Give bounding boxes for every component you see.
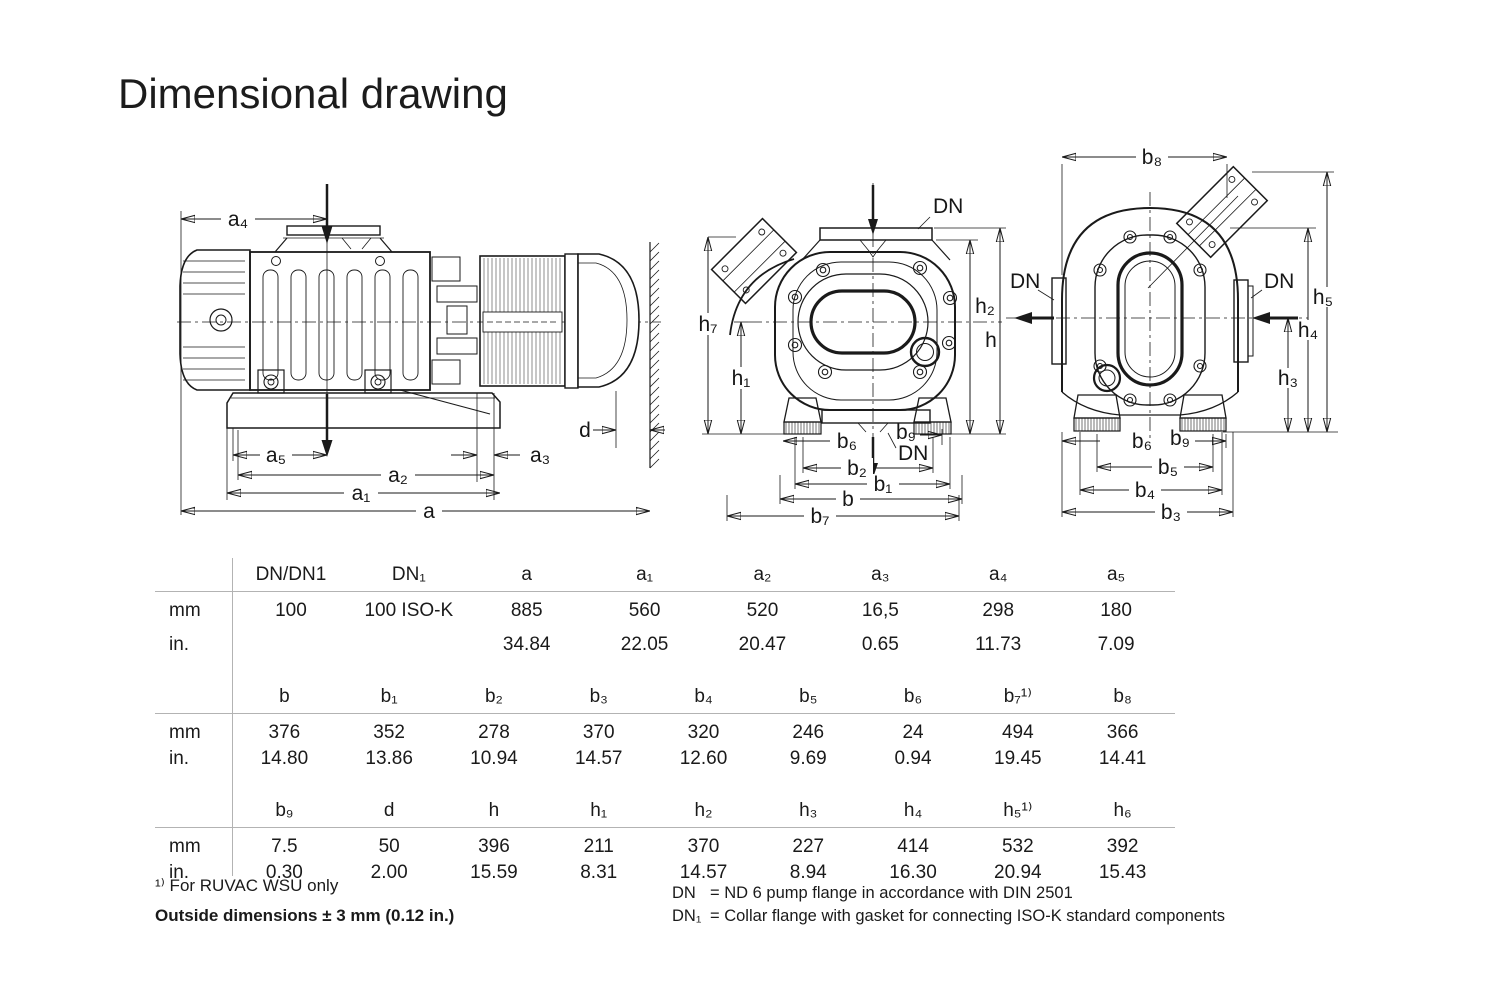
table-cell: 298	[939, 598, 1057, 624]
column-header: h₆	[1070, 799, 1175, 823]
table-cell: 532	[965, 834, 1070, 860]
dim-label-dn-left: DN	[1010, 270, 1040, 293]
table-corner	[155, 792, 232, 816]
table-cell: 20.94	[965, 860, 1070, 886]
table-cell: 180	[1057, 598, 1175, 624]
legend-definition: = Collar flange with gasket for connecti…	[710, 907, 1225, 926]
column-header: b	[232, 685, 337, 709]
column-header: a₅	[1057, 563, 1175, 587]
table-cell: 352	[337, 720, 442, 746]
table-row-in: in. 34.84 22.05 20.47 0.65 11.73 7.09	[155, 624, 1175, 658]
table-cell: 22.05	[586, 632, 704, 658]
footnote-tolerance: Outside dimensions ± 3 mm (0.12 in.)	[155, 906, 454, 926]
table-cell: 246	[756, 720, 861, 746]
dim-label-b3: b₃	[1161, 501, 1181, 524]
table-cell: 520	[704, 598, 822, 624]
table-cell: 50	[337, 834, 442, 860]
unit-label-mm: mm	[155, 834, 232, 860]
table-cell: 13.86	[337, 746, 442, 772]
dim-label-b4: b₄	[1135, 479, 1155, 502]
legend-term: DN₁	[672, 907, 710, 926]
table-cell: 34.84	[468, 632, 586, 658]
legend-definition: = ND 6 pump flange in accordance with DI…	[710, 884, 1225, 903]
dim-label-h4: h₄	[1298, 319, 1318, 342]
table-cell: 15.59	[442, 860, 547, 886]
column-header: h₁	[546, 799, 651, 823]
table-cell: 392	[1070, 834, 1175, 860]
dim-label-b5: b₅	[1158, 456, 1178, 479]
unit-label-mm: mm	[155, 720, 232, 746]
table-cell: 560	[586, 598, 704, 624]
dim-label-h7: h₇	[699, 313, 718, 336]
dim-label-b8: b₈	[1142, 146, 1162, 169]
column-header: b₃	[546, 685, 651, 709]
table-cell: 885	[468, 598, 586, 624]
column-header: h₂	[651, 799, 756, 823]
dim-label-d: d	[579, 419, 591, 442]
table-cell	[350, 624, 468, 650]
column-header: a	[468, 563, 586, 587]
table-cell: 14.57	[651, 860, 756, 886]
dim-label-b: b	[842, 488, 854, 511]
table-cell: 366	[1070, 720, 1175, 746]
column-header: DN/DN1	[232, 563, 350, 587]
table-cell: 370	[546, 720, 651, 746]
table-section-b: b b₁ b₂ b₃ b₄ b₅ b₆ b₇¹⁾ b₈ mm 376 352 2…	[155, 678, 1175, 772]
column-header: h₅¹⁾	[965, 799, 1070, 823]
column-header: DN₁	[350, 563, 468, 587]
table-cell: 7.09	[1057, 632, 1175, 658]
end-view-drawing: b₈ DN DN h₅ h₄ h₃ b₆ b₉ b₅	[990, 140, 1360, 545]
column-header: h	[442, 799, 547, 823]
flange-bolts	[789, 262, 957, 379]
side-view-drawing: a₄ d a₅ a₃ a₂ a₁ a	[175, 142, 665, 547]
side-port-flange	[712, 219, 797, 304]
unit-label-in: in.	[155, 632, 232, 658]
dim-label-a2: a₂	[388, 464, 408, 487]
legend-row-dn: DN = ND 6 pump flange in accordance with…	[672, 884, 1225, 903]
column-header: h₄	[861, 799, 966, 823]
column-header: b₁	[337, 685, 442, 709]
dim-label-b6: b₆	[837, 430, 857, 453]
dim-label-b1: b₁	[874, 473, 893, 496]
dim-label-a5: a₅	[266, 444, 286, 467]
table-cell: 211	[546, 834, 651, 860]
column-header: b₄	[651, 685, 756, 709]
dimensions-table: DN/DN1 DN₁ a a₁ a₂ a₃ a₄ a₅ mm 100 100 I…	[155, 556, 1175, 886]
table-cell: 494	[965, 720, 1070, 746]
table-cell: 278	[442, 720, 547, 746]
dim-label-dn-top: DN	[933, 195, 963, 218]
end-view-pump	[1006, 167, 1308, 440]
dim-label-b9: b₉	[896, 421, 916, 444]
column-header: a₁	[586, 563, 704, 587]
footnotes-left: ¹⁾ For RUVAC WSU only Outside dimensions…	[155, 876, 454, 926]
table-cell: 414	[861, 834, 966, 860]
table-cell: 19.45	[965, 746, 1070, 772]
front-view-dimensions: DN DN h₇ h₁ h₂ h b₆ b₉ b₂	[695, 195, 1006, 528]
table-cell: 9.69	[756, 746, 861, 772]
table-cell: 376	[232, 720, 337, 746]
column-header: b₉	[232, 799, 337, 823]
table-corner	[155, 556, 232, 580]
table-section-h: b₉ d h h₁ h₂ h₃ h₄ h₅¹⁾ h₆ mm 7.5 50 396…	[155, 792, 1175, 886]
column-header: b₂	[442, 685, 547, 709]
table-cell: 8.31	[546, 860, 651, 886]
table-cell: 7.5	[232, 834, 337, 860]
table-section-a: DN/DN1 DN₁ a a₁ a₂ a₃ a₄ a₅ mm 100 100 I…	[155, 556, 1175, 658]
dim-label-a1: a₁	[352, 482, 371, 505]
table-cell: 14.80	[232, 746, 337, 772]
table-row-mm: mm 376 352 278 370 320 246 24 494 366	[155, 720, 1175, 746]
legend-row-dn1: DN₁ = Collar flange with gasket for conn…	[672, 907, 1225, 926]
table-cell: 16.30	[861, 860, 966, 886]
footnote-ruvac: ¹⁾ For RUVAC WSU only	[155, 876, 454, 896]
unit-label-mm: mm	[155, 598, 232, 624]
table-cell: 24	[861, 720, 966, 746]
dim-label-h5: h₅	[1313, 286, 1333, 309]
table-cell: 396	[442, 834, 547, 860]
legend-term: DN	[672, 884, 710, 903]
column-header: b₆	[861, 685, 966, 709]
wall-hatching	[650, 242, 659, 468]
column-header: b₅	[756, 685, 861, 709]
dim-label-a4: a₄	[228, 208, 248, 231]
table-cell: 14.41	[1070, 746, 1175, 772]
dim-label-b2: b₂	[847, 457, 867, 480]
table-cell: 8.94	[756, 860, 861, 886]
table-cell: 0.65	[821, 632, 939, 658]
table-cell: 320	[651, 720, 756, 746]
table-cell: 16,5	[821, 598, 939, 624]
table-cell: 20.47	[704, 632, 822, 658]
dim-label-b7: b₇	[811, 505, 830, 528]
page-title: Dimensional drawing	[118, 70, 508, 118]
column-header: d	[337, 799, 442, 823]
unit-label-in: in.	[155, 746, 232, 772]
table-cell: 14.57	[546, 746, 651, 772]
column-header: h₃	[756, 799, 861, 823]
dim-label-dn-right: DN	[1264, 270, 1294, 293]
dim-label-b9: b₉	[1170, 427, 1190, 450]
table-cell: 11.73	[939, 632, 1057, 658]
table-row-mm: mm 100 100 ISO-K 885 560 520 16,5 298 18…	[155, 598, 1175, 624]
dn-legend: DN = ND 6 pump flange in accordance with…	[672, 884, 1225, 930]
table-cell: 100 ISO-K	[350, 598, 468, 624]
column-header: b₈	[1070, 685, 1175, 709]
column-header: b₇¹⁾	[965, 685, 1070, 709]
outlet-flow-arrow	[322, 394, 333, 457]
table-cell: 0.94	[861, 746, 966, 772]
table-cell	[232, 624, 350, 650]
table-cell: 100	[232, 598, 350, 624]
table-cell: 10.94	[442, 746, 547, 772]
table-cell: 370	[651, 834, 756, 860]
dim-label-b6: b₆	[1132, 430, 1152, 453]
dim-label-h3: h₃	[1278, 367, 1298, 390]
table-cell: 12.60	[651, 746, 756, 772]
column-header: a₂	[704, 563, 822, 587]
column-header: a₄	[939, 563, 1057, 587]
flow-arrow-left	[1014, 312, 1054, 324]
table-row-mm: mm 7.5 50 396 211 370 227 414 532 392	[155, 834, 1175, 860]
dim-label-a: a	[423, 500, 435, 523]
dim-label-a3: a₃	[530, 444, 550, 467]
dim-label-dn-bottom: DN	[898, 442, 928, 465]
column-header: a₃	[821, 563, 939, 587]
front-view-drawing: DN DN h₇ h₁ h₂ h b₆ b₉ b₂	[690, 145, 1025, 545]
table-cell: 227	[756, 834, 861, 860]
table-row-in: in. 14.80 13.86 10.94 14.57 12.60 9.69 0…	[155, 746, 1175, 772]
dim-label-h1: h₁	[732, 367, 751, 390]
table-cell: 15.43	[1070, 860, 1175, 886]
table-corner	[155, 678, 232, 702]
